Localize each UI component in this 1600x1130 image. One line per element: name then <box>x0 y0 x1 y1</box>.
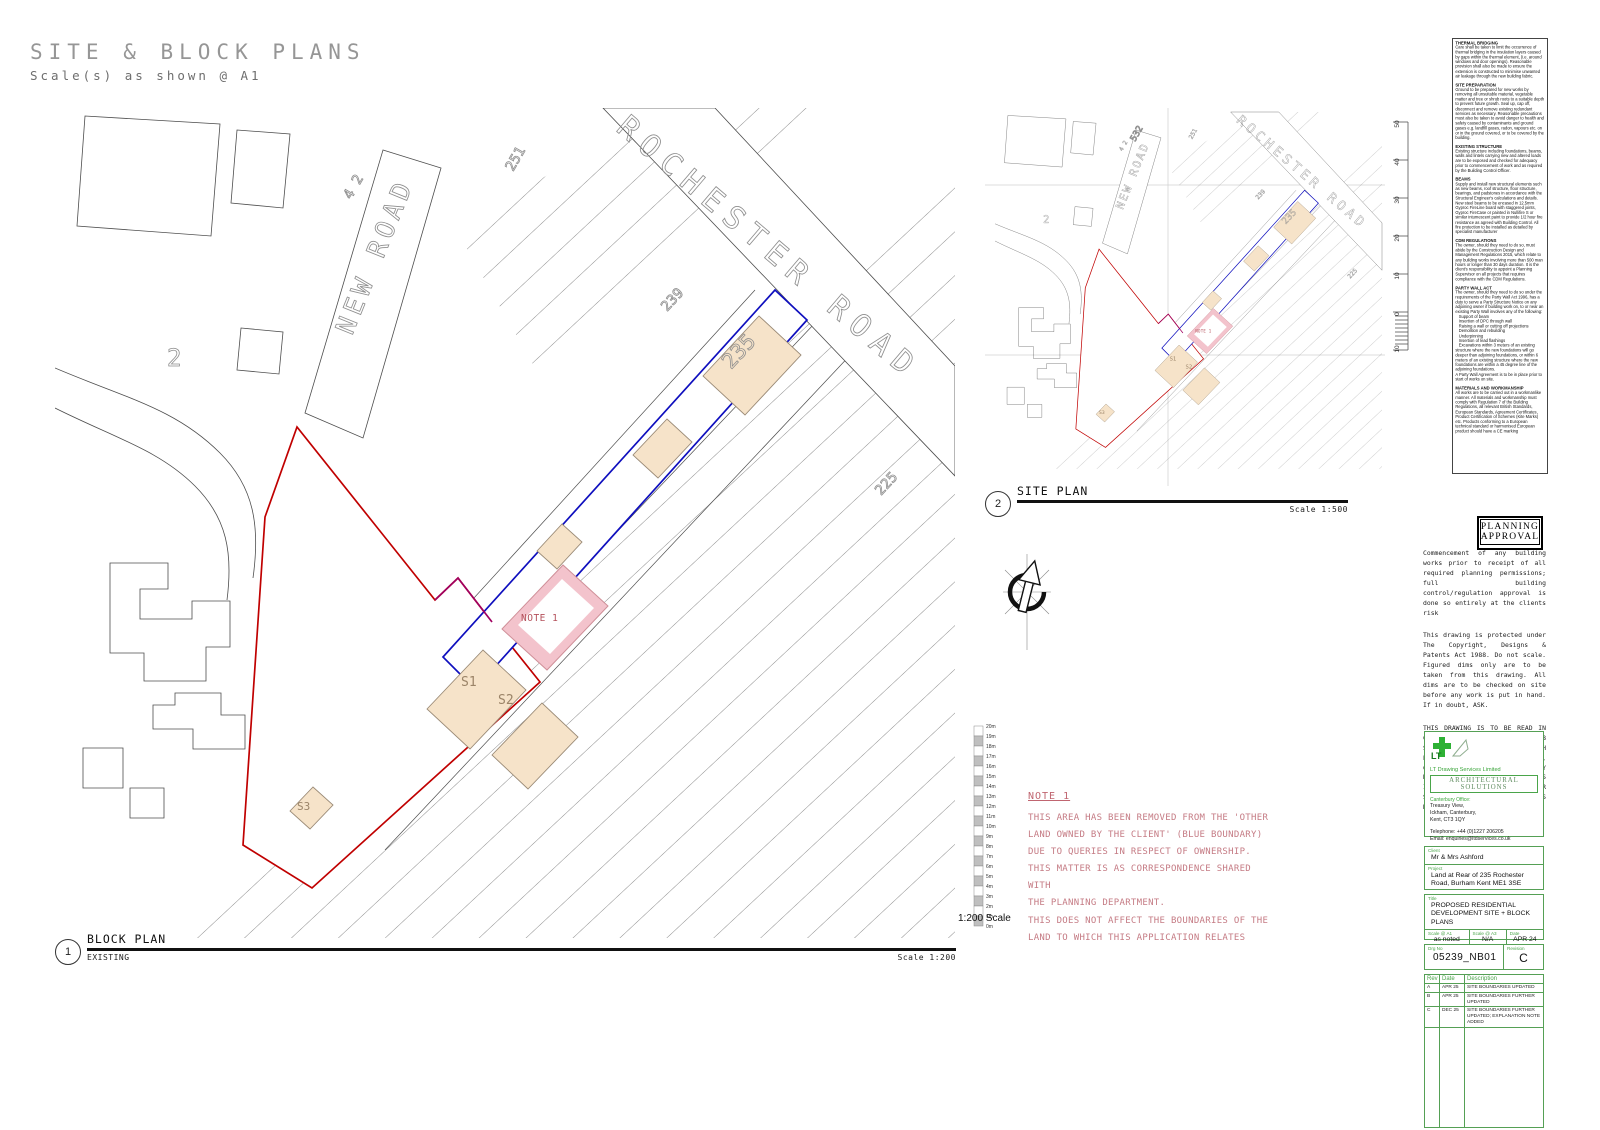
site-plan-callout-number: 2 <box>985 491 1011 517</box>
firm-name: LT Drawing Services Limited <box>1430 767 1538 773</box>
drawing-title: PROPOSED RESIDENTIAL DEVELOPMENT SITE + … <box>1425 901 1543 929</box>
scale-tick-label: 6m <box>986 864 993 870</box>
rev-cell: SITE BOUNDARIES UPDATED <box>1465 984 1543 993</box>
revision-value: C <box>1504 951 1543 965</box>
scale-tick-label: 18m <box>986 744 996 750</box>
scale-tick-label: 10m <box>986 824 996 830</box>
block-plan-callout-number: 1 <box>55 939 81 965</box>
scale-tick-label: 10 <box>1394 345 1401 353</box>
stamp-line1: PLANNING <box>1481 522 1539 532</box>
scale-tick-label: 20m <box>986 724 996 730</box>
client-value: Mr & Mrs Ashford <box>1425 853 1543 861</box>
legal-paragraph-2: This drawing is protected under The Copy… <box>1423 631 1546 710</box>
scale-bar: 20m 19m 18m 17m 16m 15m 14m 13m 12m 11m … <box>972 724 1018 934</box>
revision-table: Rev Date Description A APR 25 SITE BOUND… <box>1424 974 1544 1128</box>
revision-table-empty-rows <box>1425 1028 1543 1128</box>
block-plan-status: EXISTING <box>87 953 130 962</box>
client-project-box: Client Mr & Mrs Ashford Project Land at … <box>1424 846 1544 890</box>
note1-title: NOTE 1 <box>1028 791 1278 802</box>
scale-tick-label: 8m <box>986 844 993 850</box>
scale-tick-label: 3m <box>986 894 993 900</box>
scale-tick-label: 14m <box>986 784 996 790</box>
note1-area-label: NOTE 1 <box>521 613 558 624</box>
block-plan-scale: Scale 1:200 <box>898 953 956 962</box>
scale-tick-label: 0m <box>986 924 993 930</box>
plan-geometry: NOTE 1 NEW ROAD ROCHESTER ROAD 2 4 2 251… <box>55 108 955 938</box>
rev-header: Date <box>1440 975 1465 984</box>
drawing-number-box: Drg No 05239_NB01 Revision C <box>1424 944 1544 970</box>
plot-label-s2: S2 <box>498 693 514 708</box>
firm-telephone: Telephone: +44 (0)1227 206205 <box>1430 829 1538 836</box>
rev-cell: C <box>1425 1007 1440 1027</box>
north-arrow-icon: N <box>1000 548 1056 652</box>
firm-address-line: Treasury View, <box>1430 803 1538 810</box>
plot-label-s1: S1 <box>461 675 477 690</box>
rev-cell: APR 25 <box>1440 993 1465 1008</box>
firm-email: Email: enquiries@ltdservices.co.uk <box>1430 836 1538 843</box>
sheet-header: SITE & BLOCK PLANS Scale(s) as shown @ A… <box>30 40 366 83</box>
sheet-title: SITE & BLOCK PLANS <box>30 40 366 64</box>
title-box: Title PROPOSED RESIDENTIAL DEVELOPMENT S… <box>1424 894 1544 940</box>
stamp-line2: APPROVAL <box>1481 532 1540 542</box>
firm-box: LT LT Drawing Services Limited ARCHITECT… <box>1424 731 1544 837</box>
block-plan-drawing: NOTE 1 NEW ROAD ROCHESTER ROAD 2 4 2 251… <box>55 108 955 938</box>
sheet-subtitle: Scale(s) as shown @ A1 <box>30 68 366 83</box>
legal-paragraph-1: Commencement of any building works prior… <box>1423 549 1546 618</box>
project-value: Land at Rear of 235 Rochester Road, Burh… <box>1425 871 1543 889</box>
lt-logo-text: LT <box>1431 751 1442 760</box>
notes-section: EXISTING STRUCTURE Existing structure in… <box>1455 145 1544 174</box>
firm-tagline: ARCHITECTURAL SOLUTIONS <box>1430 775 1538 793</box>
scale-tick-label: 5m <box>986 874 993 880</box>
rev-cell: SITE BOUNDARIES FURTHER UPDATED <box>1465 993 1543 1008</box>
scale-tick-label: 0 <box>1394 312 1401 316</box>
scale-tick-label: 11m <box>986 814 995 820</box>
scale-tick-label: 17m <box>986 754 996 760</box>
scale-a3-value: N/A <box>1470 936 1506 943</box>
notes-section: SITE PREPARATION Ground to be prepared f… <box>1455 83 1544 141</box>
scale-bar-segments <box>974 726 983 926</box>
notes-section: PARTY WALL ACT The owner, should they ne… <box>1455 286 1544 383</box>
block-plan-title: BLOCK PLAN <box>87 932 956 946</box>
scale-tick-label: 30 <box>1394 196 1401 204</box>
date-value: APR 24 <box>1507 936 1543 943</box>
notes-section: THERMAL BRIDGING Care shall be taken to … <box>1455 41 1544 80</box>
scale-bar-labels: 20m 19m 18m 17m 16m 15m 14m 13m 12m 11m … <box>986 724 996 930</box>
rev-cell: APR 25 <box>1440 984 1465 993</box>
house-number-4-2: 4 2 <box>341 172 368 202</box>
rev-cell: DEC 25 <box>1440 1007 1465 1027</box>
notes-section: BEAMS Supply and install new structural … <box>1455 177 1544 235</box>
scale-tick-label: 20 <box>1394 234 1401 242</box>
scale-tick-label: 4m <box>986 884 993 890</box>
lt-logo-icon: LT <box>1430 736 1470 760</box>
firm-address-line: Ickham, Canterbury, <box>1430 810 1538 817</box>
notes-section: CDM REGULATIONS The owner, should they n… <box>1455 239 1544 283</box>
firm-address-line: Kent, CT3 1QY <box>1430 817 1538 824</box>
scale-tick-label: 40 <box>1394 158 1401 166</box>
site-plan-rule <box>1017 500 1348 503</box>
notes-section: MATERIALS AND WORKMANSHIP All works are … <box>1455 386 1544 434</box>
rev-cell: SITE BOUNDARIES FURTHER UPDATED; EXPLANA… <box>1465 1007 1543 1027</box>
site-plan-title: SITE PLAN <box>1017 484 1348 498</box>
scale-tick-label: 10 <box>1394 272 1401 280</box>
site-plan-drawing: 532 50 40 30 20 10 0 10 <box>985 108 1415 488</box>
planning-approval-stamp: PLANNING APPROVAL <box>1477 516 1543 550</box>
site-plan-caption: 2 SITE PLAN Scale 1:500 <box>985 484 1348 517</box>
scale-tick-label: 19m <box>986 734 996 740</box>
construction-notes-panel: THERMAL BRIDGING Care shall be taken to … <box>1452 38 1548 474</box>
rev-cell: A <box>1425 984 1440 993</box>
house-number-239: 239 <box>658 285 687 314</box>
plot-label-s3: S3 <box>297 800 310 813</box>
scale-tick-label: 2m <box>986 904 993 910</box>
site-plan-geometry <box>995 112 1382 469</box>
scale-tick-label: 12m <box>986 804 996 810</box>
scale-bar-caption: 1:200 Scale <box>958 913 1011 924</box>
note1-block: NOTE 1 THIS AREA HAS BEEN REMOVED FROM T… <box>1028 791 1278 947</box>
scale-tick-label: 9m <box>986 834 993 840</box>
note1-body: THIS AREA HAS BEEN REMOVED FROM THE 'OTH… <box>1028 810 1278 947</box>
house-number-251: 251 <box>503 144 530 174</box>
rev-header: Description <box>1465 975 1543 984</box>
drg-no-value: 05239_NB01 <box>1425 951 1503 963</box>
site-plan-scale: Scale 1:500 <box>1290 505 1348 514</box>
site-plan-scale-tick-labels: 50 40 30 20 10 0 10 <box>1394 120 1401 353</box>
scale-tick-label: 13m <box>986 794 996 800</box>
scale-tick-label: 50 <box>1394 120 1401 128</box>
rev-header: Rev <box>1425 975 1440 984</box>
scale-tick-label: 16m <box>986 764 996 770</box>
block-plan-rule <box>87 948 956 951</box>
scale-tick-label: 7m <box>986 854 993 860</box>
block-plan-caption: 1 BLOCK PLAN EXISTING Scale 1:200 <box>55 932 956 965</box>
scale-a1-value: as noted <box>1425 936 1469 943</box>
rev-cell: B <box>1425 993 1440 1008</box>
house-number-2: 2 <box>167 344 181 372</box>
scale-tick-label: 15m <box>986 774 996 780</box>
